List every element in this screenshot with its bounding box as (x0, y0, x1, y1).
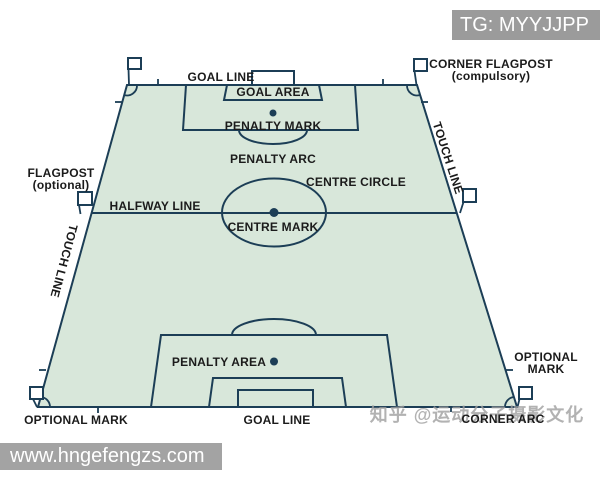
label-flagpost-optional: FLAGPOST (optional) (19, 168, 103, 191)
label-penalty-mark: PENALTY MARK (225, 120, 322, 132)
label-goal-area: GOAL AREA (236, 86, 309, 98)
label-optional-mark-bottom: OPTIONAL MARK (24, 414, 128, 426)
label-goal-line-top: GOAL LINE (188, 71, 255, 83)
label-penalty-arc: PENALTY ARC (230, 153, 316, 165)
label-corner-arc: CORNER ARC (462, 413, 545, 425)
tg-badge: TG: MYYJJPP (452, 10, 600, 40)
pitch-diagram: 知乎 @运动分子摄影文化 GOAL LINE GOAL AREA PENALTY… (0, 0, 600, 480)
bottom-url-bar: www.hngefengzs.com (0, 443, 222, 470)
label-flagpost-line2: (optional) (19, 180, 103, 192)
label-goal-line-bottom: GOAL LINE (244, 414, 311, 426)
label-corner-flagpost-line2: (compulsory) (428, 71, 554, 83)
flagpost-halfway-left (78, 192, 92, 214)
label-centre-circle: CENTRE CIRCLE (306, 176, 406, 188)
label-centre-mark: CENTRE MARK (228, 221, 319, 233)
centre-spot (270, 208, 279, 217)
bottom-penalty-spot (270, 358, 278, 366)
label-penalty-area: PENALTY AREA (172, 356, 266, 368)
flagpost-top-left (128, 58, 141, 85)
label-optional-mark-right-line2: MARK (514, 364, 578, 376)
top-goal-box (252, 71, 294, 85)
flagpost-top-right (414, 59, 427, 85)
top-penalty-spot (270, 110, 277, 117)
label-optional-mark-right: OPTIONAL MARK (514, 352, 578, 375)
label-corner-flagpost: CORNER FLAGPOST (compulsory) (428, 59, 554, 82)
label-halfway-line: HALFWAY LINE (109, 200, 200, 212)
